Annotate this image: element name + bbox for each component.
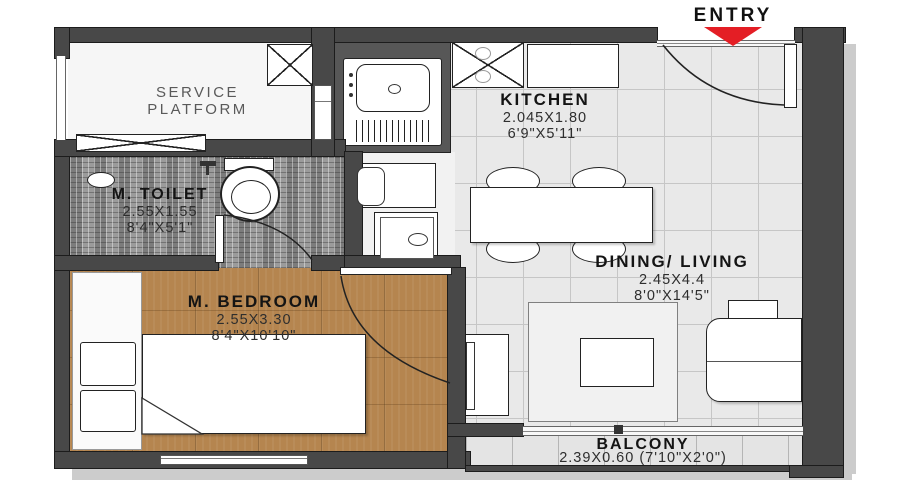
tap-dot — [349, 73, 353, 77]
dining-living-label: DINING/ LIVING 2.45X4.4 8'0"X14'5" — [562, 252, 782, 304]
balcony-door-handle — [614, 425, 623, 434]
balcony-sliding-door — [523, 426, 803, 436]
pillow — [80, 390, 136, 432]
bedroom-door-leaf — [340, 267, 452, 275]
service-platform-label: SERVICE PLATFORM — [135, 84, 260, 118]
sofa — [706, 318, 802, 402]
sofa-seat-line — [707, 361, 801, 362]
wall-right — [803, 28, 843, 468]
bedroom-label: M. BEDROOM 2.55X3.30 8'4"X10'10" — [154, 292, 354, 344]
service-window — [314, 85, 332, 140]
toilet-label: M. TOILET 2.55X1.55 8'4"X5'1" — [75, 186, 245, 236]
kitchen-name: KITCHEN — [445, 90, 645, 110]
fridge — [357, 167, 385, 206]
floor-plan: ENTRY SERVICE PLATFORM — [0, 0, 900, 500]
drainboard — [356, 120, 430, 142]
coffee-table — [580, 338, 654, 387]
balcony-dim-label: 2.39X0.60 (7'10"X2'0") — [483, 450, 803, 466]
dining-living-dim-m: 2.45X4.4 — [562, 272, 782, 288]
entry-door-leaf — [784, 44, 797, 108]
pillow — [80, 342, 136, 386]
sink-drain-icon — [388, 84, 401, 94]
wash-drain-icon — [408, 233, 428, 246]
kitchen-counter-top — [527, 44, 619, 88]
bed — [142, 334, 366, 434]
entry-label: ENTRY — [653, 5, 813, 27]
wall-balcony-stub — [448, 424, 523, 436]
balcony-dim: 2.39X0.60 (7'10"X2'0") — [483, 450, 803, 466]
toilet-name: M. TOILET — [75, 186, 245, 204]
toilet-dim-m: 2.55X1.55 — [75, 204, 245, 220]
wall-balcony-bottom-rail — [466, 466, 803, 471]
dining-living-name: DINING/ LIVING — [562, 252, 782, 272]
sp-railing — [56, 56, 66, 140]
sp-ledge — [76, 134, 206, 152]
shower-stem-icon — [206, 166, 209, 175]
wall-bottom-right-corner — [790, 466, 843, 477]
bedroom-dim-m: 2.55X3.30 — [154, 312, 354, 328]
dining-living-dim-ft: 8'0"X14'5" — [562, 288, 782, 304]
kitchen-label: KITCHEN 2.045X1.80 6'9"X5'11" — [445, 90, 645, 142]
wall-left-main — [55, 140, 69, 455]
kitchen-dim-m: 2.045X1.80 — [445, 110, 645, 126]
wall-toilet-bottom-left — [55, 256, 218, 270]
plan-shadow-right — [843, 44, 856, 474]
kitchen-dim-ft: 6'9"X5'11" — [445, 126, 645, 142]
entry-arrow-icon — [704, 27, 762, 46]
burner-icon — [475, 47, 491, 60]
wall-top-left — [55, 28, 657, 42]
wall-bedroom-living — [448, 268, 465, 468]
bedroom-dim-ft: 8'4"X10'10" — [154, 328, 354, 344]
dining-table — [470, 187, 653, 243]
tv-screen — [466, 342, 475, 410]
tap-dot — [349, 93, 353, 97]
bedroom-name: M. BEDROOM — [154, 292, 354, 312]
duct-box — [267, 44, 313, 86]
toilet-dim-ft: 8'4"X5'1" — [75, 220, 245, 236]
wall-left-upper-stub — [55, 28, 69, 58]
bedroom-window — [160, 455, 308, 465]
tap-dot — [349, 83, 353, 87]
stove-hob — [452, 42, 524, 88]
burner-icon — [475, 70, 491, 83]
